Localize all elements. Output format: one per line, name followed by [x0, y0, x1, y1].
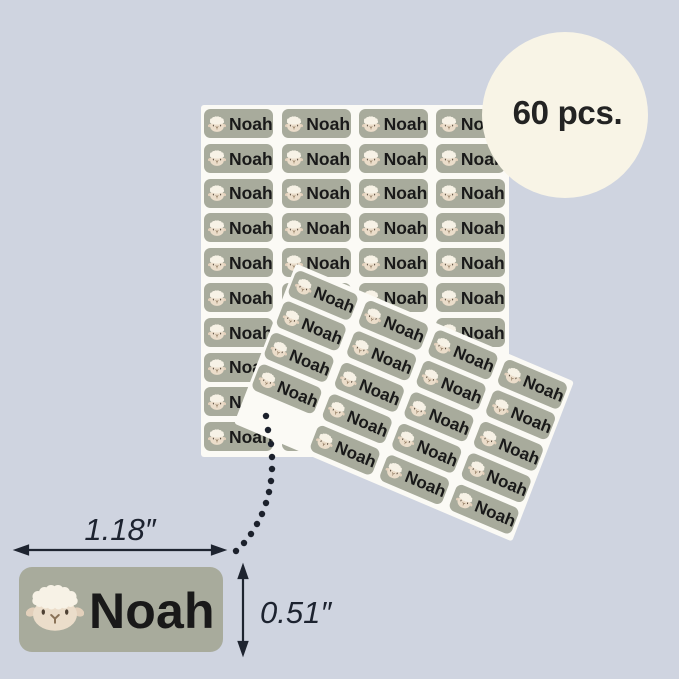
svg-text:1.18″: 1.18″ — [84, 512, 156, 547]
svg-text:0.51″: 0.51″ — [260, 595, 332, 630]
